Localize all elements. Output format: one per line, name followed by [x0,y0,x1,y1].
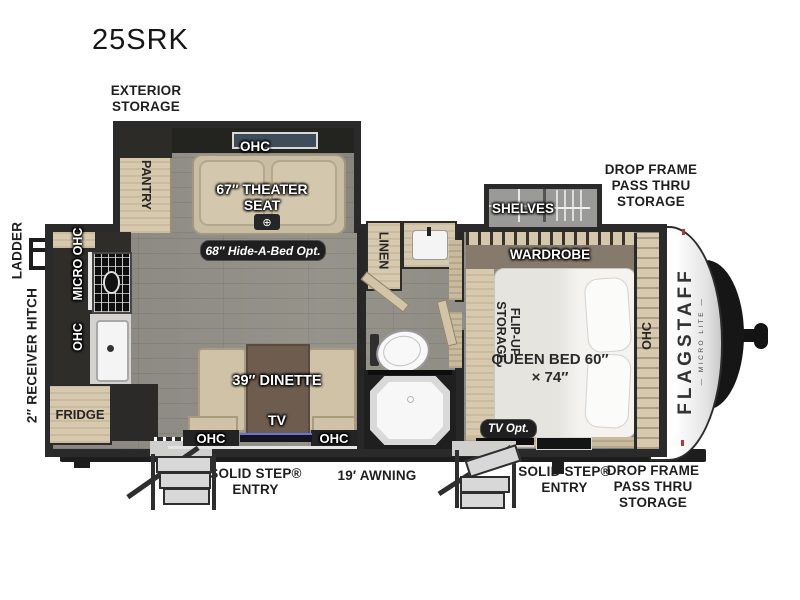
bed-ohc-label: OHC [640,315,654,357]
hanging-rod-lines [556,190,582,221]
solid-step-right-label: SOLID STEP® ENTRY [512,464,617,496]
dinette-label: 39″ DINETTE [230,364,324,400]
theater-seat-label: 67″ THEATER SEAT [200,179,324,215]
dinette-ohc-right-label: OHC [311,430,357,446]
drop-frame-front-label: DROP FRAME PASS THRU STORAGE [592,162,710,210]
shower-pan-inner [377,382,443,439]
stabilizer-right [552,460,564,474]
pantry-label: PANTRY [139,149,153,221]
brand-name: FLAGSTAFF [675,267,697,415]
dinette-tv-bar [240,433,312,442]
step-tread [159,472,211,489]
step-tread [163,488,210,505]
flip-up-storage-label: FLIP-UP STORAGE [493,295,523,369]
step-tread [156,456,212,473]
floorplan-canvas: 25SRK EXTERIOR STORAGE DROP FRAME PASS T… [0,0,800,600]
wardrobe-label: WARDROBE [490,246,610,262]
wardrobe-hanger-band [466,232,634,245]
shower-threshold [368,370,452,375]
micro-ohc-label: MICRO OHC [71,221,85,307]
awning-label: 19′ AWNING [327,468,427,484]
stabilizer-left [74,460,90,468]
linen-label: LINEN [378,224,391,278]
bath-cabinet-upper [449,240,462,300]
tv-label: TV [262,412,292,428]
cap-marker-top [682,229,685,235]
tv-opt-badge: TV Opt. [480,419,537,439]
vanity-faucet [427,227,431,236]
dinette-ohc-left-label: OHC [183,430,239,446]
page-title: 25SRK [92,24,189,57]
hide-a-bed-badge: 68″ Hide-A-Bed Opt. [200,240,326,261]
cupholder-console: ⊕ [254,214,280,230]
step-rail-left-b [212,454,216,510]
stove-burner [103,271,120,294]
exterior-storage-label: EXTERIOR STORAGE [86,83,206,115]
kitchen-corner-cabinet [112,384,158,441]
step-rail-left-a [151,454,155,510]
bed-pillow-top [583,277,632,354]
sink-faucet [107,345,114,352]
brand-logo: FLAGSTAFF — MICRO LITE — [671,249,709,433]
fridge-label: FRIDGE [48,384,112,445]
ladder-label: LADDER [10,220,25,282]
step-rail-right-a [455,450,459,508]
tablet [536,437,592,450]
cupholder-icon: ⊕ [262,216,271,229]
cap-marker-bottom [681,440,684,446]
solid-step-left-label: SOLID STEP® ENTRY [203,466,308,498]
slide-ohc-label: OHC [230,138,280,154]
brand-sub: — MICRO LITE — [698,297,705,386]
shower-drain [407,396,414,403]
receiver-hitch-label: 2″ RECEIVER HITCH [25,286,40,426]
shelves-label: SHELVES [488,200,558,216]
step-tread [460,476,510,493]
step-tread [460,492,505,509]
kitchen-ohc-label: OHC [71,314,85,360]
